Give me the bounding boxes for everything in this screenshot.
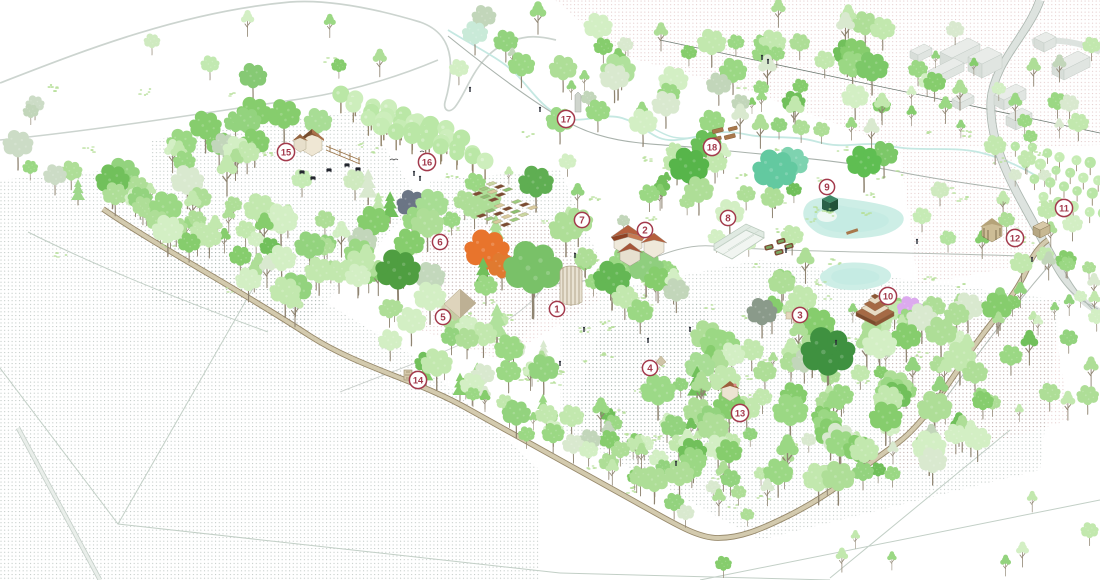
svg-text:15: 15 [281, 147, 291, 157]
svg-text:3: 3 [797, 310, 803, 321]
svg-text:10: 10 [883, 291, 893, 301]
svg-text:12: 12 [1010, 233, 1020, 243]
svg-text:5: 5 [440, 312, 446, 323]
svg-text:14: 14 [413, 375, 424, 385]
svg-text:1: 1 [554, 304, 560, 315]
svg-text:13: 13 [735, 408, 745, 418]
svg-text:9: 9 [824, 182, 830, 193]
svg-text:4: 4 [647, 363, 653, 374]
svg-text:7: 7 [579, 215, 585, 226]
svg-text:6: 6 [437, 237, 443, 248]
svg-text:2: 2 [642, 225, 648, 236]
svg-text:18: 18 [707, 142, 717, 152]
svg-text:11: 11 [1059, 203, 1069, 213]
svg-text:17: 17 [561, 114, 571, 124]
svg-text:16: 16 [422, 157, 432, 167]
svg-text:8: 8 [725, 213, 731, 224]
